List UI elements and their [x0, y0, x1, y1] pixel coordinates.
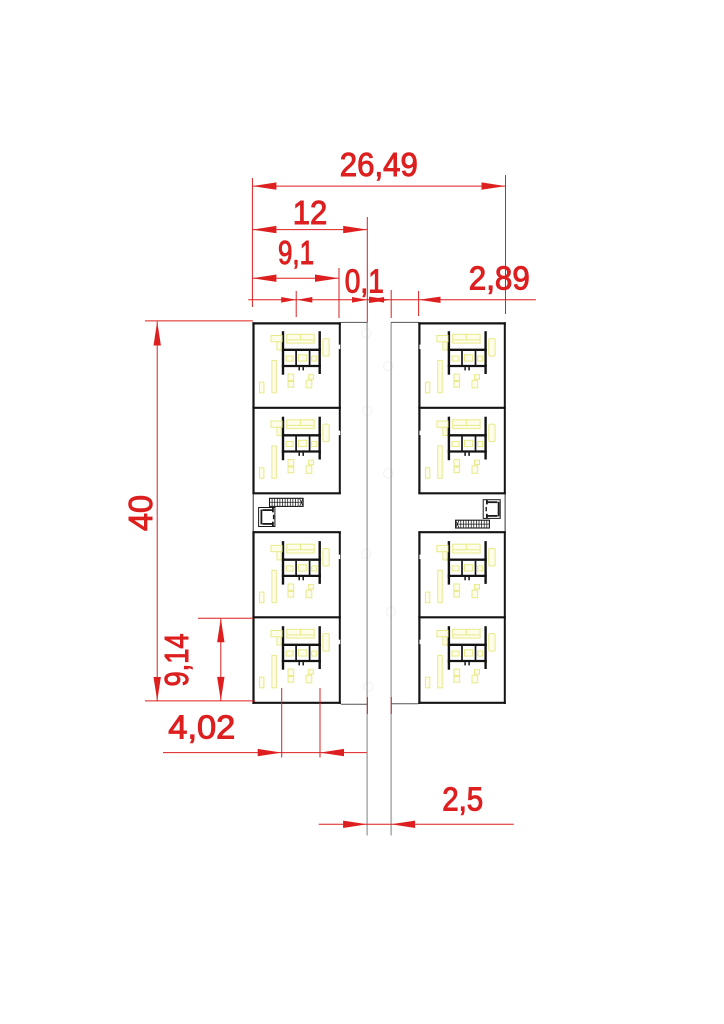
svg-text:2,5: 2,5: [442, 781, 483, 818]
svg-text:2,89: 2,89: [469, 260, 530, 297]
svg-text:26,49: 26,49: [340, 146, 418, 183]
svg-text:0,1: 0,1: [345, 263, 384, 300]
svg-text:4,02: 4,02: [168, 709, 235, 746]
svg-text:9,14: 9,14: [158, 634, 195, 687]
svg-text:12: 12: [293, 194, 328, 231]
svg-text:9,1: 9,1: [278, 234, 314, 271]
svg-text:40: 40: [122, 495, 159, 531]
